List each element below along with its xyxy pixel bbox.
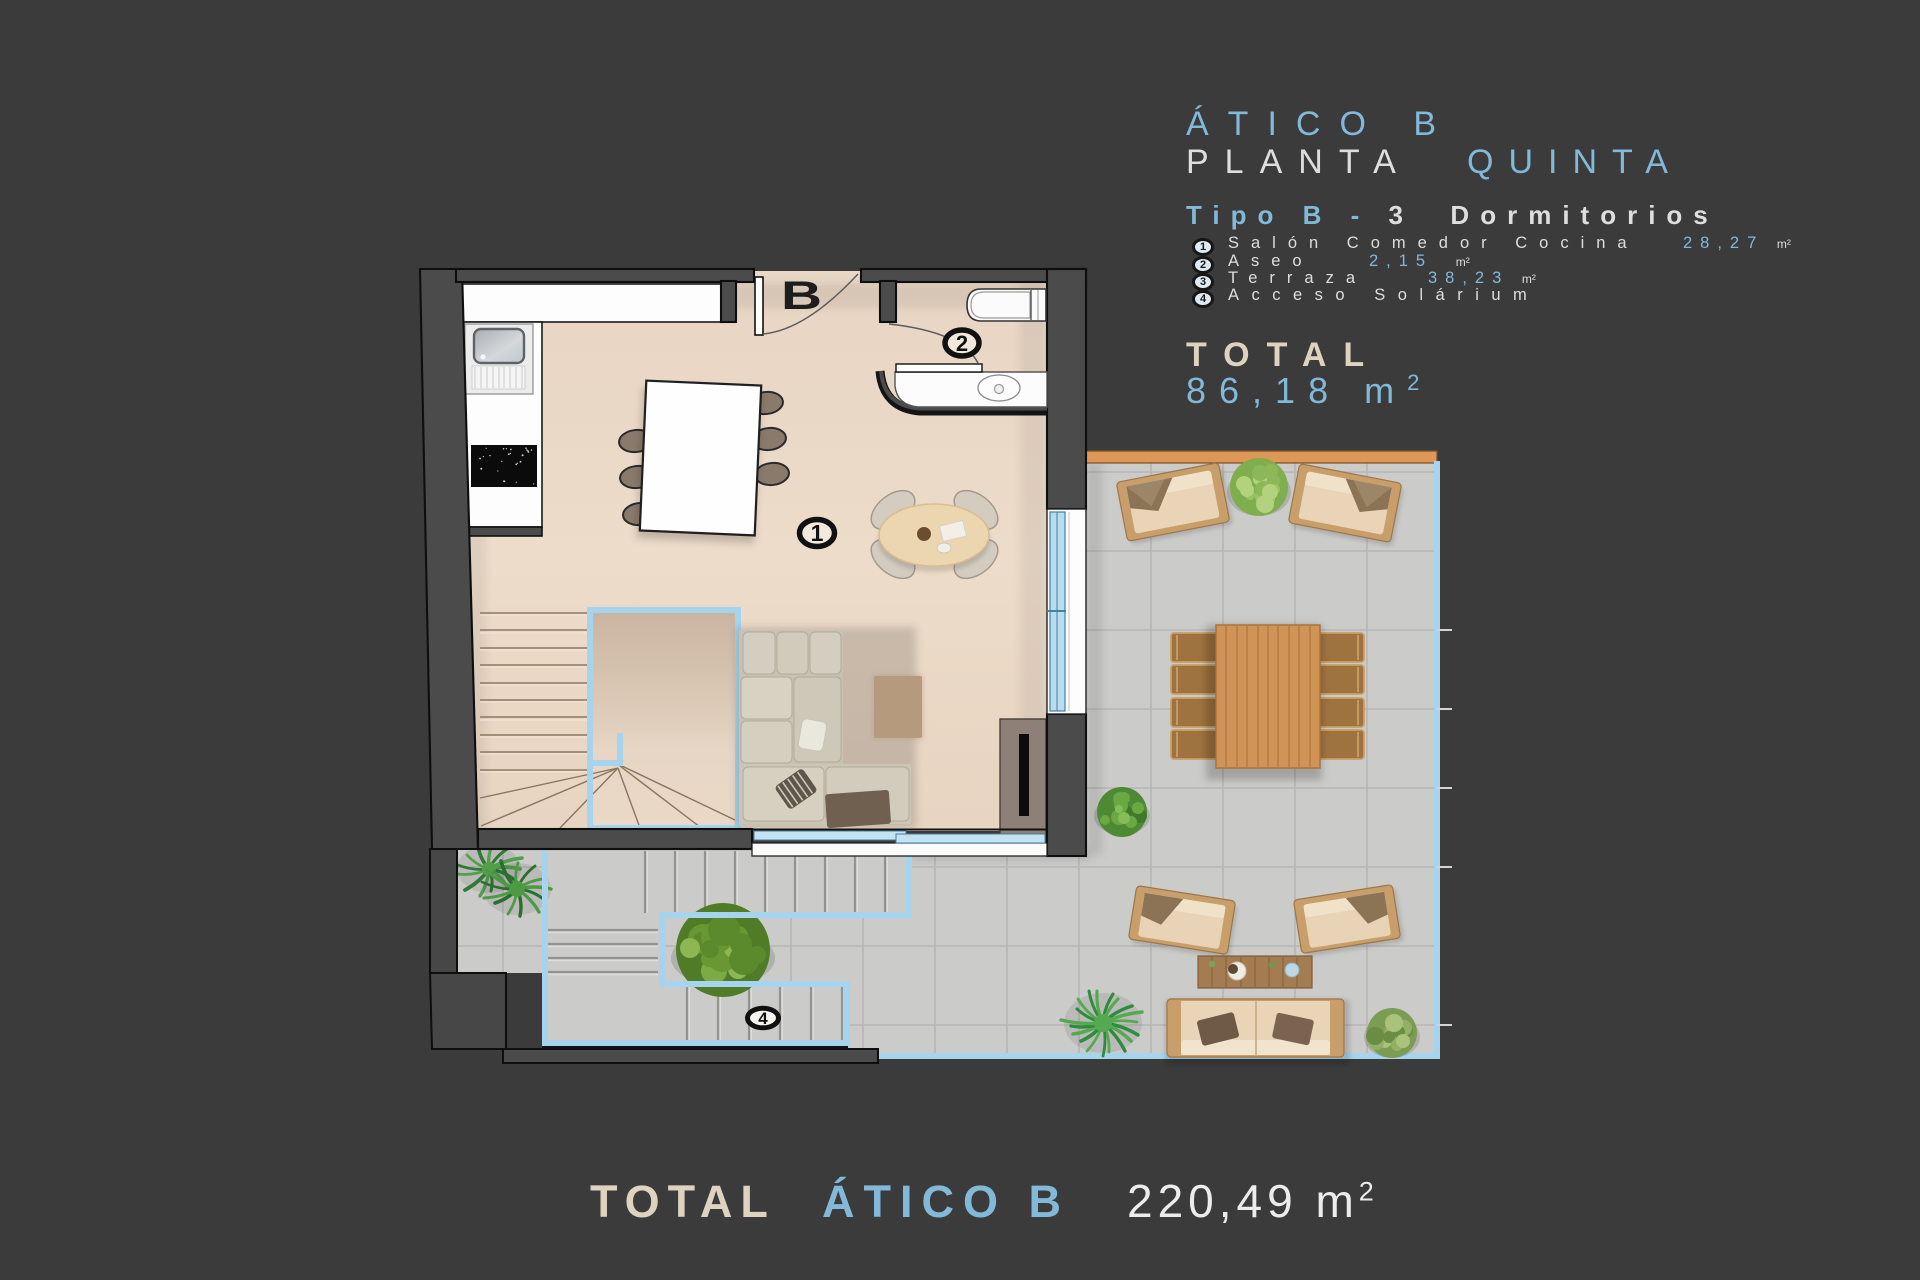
svg-text:2: 2	[956, 331, 968, 356]
svg-text:1: 1	[811, 520, 824, 546]
svg-text:4: 4	[758, 1009, 768, 1028]
svg-text:B: B	[781, 274, 822, 318]
